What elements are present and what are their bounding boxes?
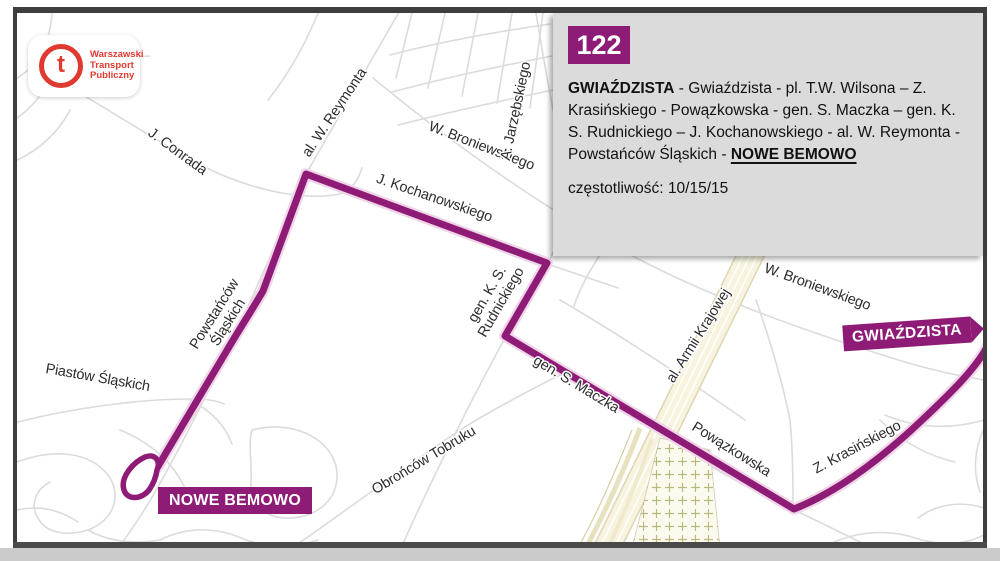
route-frequency: częstotliwość: 10/15/15 [568, 180, 965, 198]
wtp-logo-line: Publiczny [90, 71, 144, 82]
street-label: A. Jarzębskiego [498, 60, 535, 161]
terminus-loop [123, 456, 158, 498]
bottom-strip [0, 548, 1000, 561]
street-label: Obrońców Tobruku [369, 423, 479, 498]
route-number-badge: 122 [568, 26, 630, 64]
wtp-logo: t Warszawski Transport Publiczny [28, 35, 140, 97]
street-label: J. Conrada [145, 125, 211, 179]
frame-border-right [983, 7, 987, 548]
street-label: gen. S. Maczka [530, 353, 622, 417]
street-label: Piastów Śląskich [44, 359, 151, 395]
route-info-box: 122 GWIAŹDZISTA - Gwiaździsta - pl. T.W.… [553, 13, 983, 256]
route-destination: NOWE BEMOWO [731, 146, 857, 163]
wtp-t-letter: t [57, 53, 65, 77]
wtp-t-icon: t [39, 44, 83, 88]
street-label: W. Broniewskiego [762, 261, 873, 314]
frame-border-left [13, 7, 17, 548]
wtp-logo-text: Warszawski Transport Publiczny [90, 50, 144, 82]
street-label: al. W. Reymonta [299, 65, 371, 161]
terminus-flag-nowe-bemowo: NOWE BEMOWO [158, 487, 312, 514]
route-origin: GWIAŹDZISTA [568, 80, 674, 97]
map-sheet: J. Conrada al. W. Reymonta W. Broniewski… [0, 0, 1000, 561]
frequency-label: częstotliwość: [568, 180, 664, 197]
route-description: GWIAŹDZISTA - Gwiaździsta - pl. T.W. Wil… [568, 78, 965, 166]
frequency-value: 10/15/15 [668, 180, 728, 197]
